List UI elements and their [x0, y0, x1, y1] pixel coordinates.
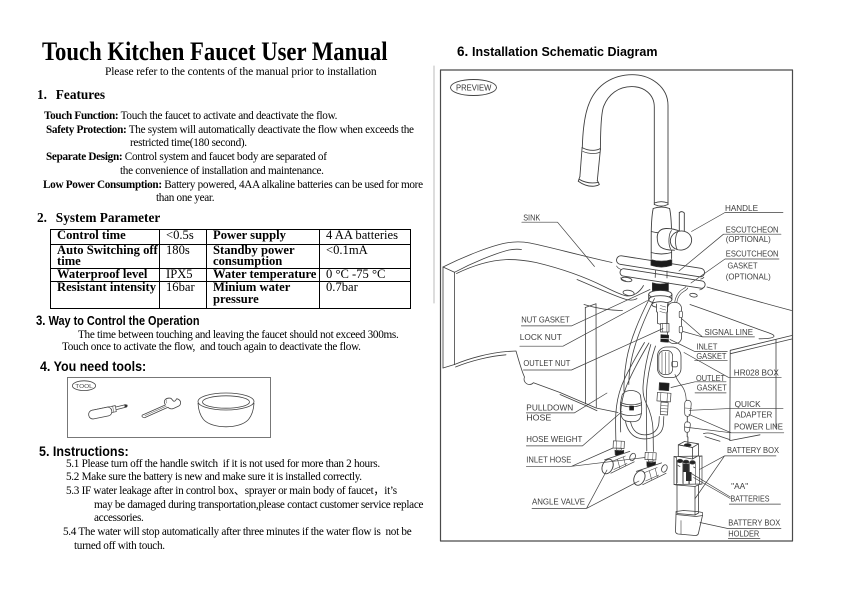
svg-text:TOOL: TOOL: [75, 384, 93, 390]
